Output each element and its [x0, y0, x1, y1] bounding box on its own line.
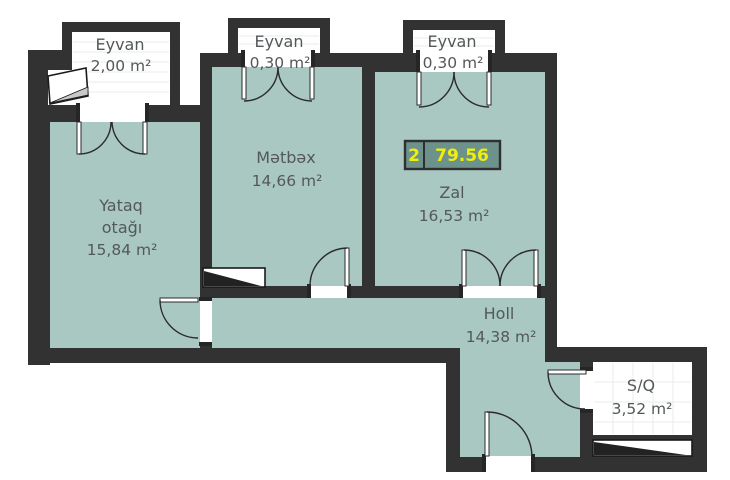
wall-zal-right: [545, 53, 557, 362]
room-area-eyvan3: 0,30 m²: [423, 54, 484, 72]
room-name-yataq-line1: Yataq: [98, 196, 143, 215]
sq-window-symbol: [593, 440, 692, 456]
doorway-eyvan1-yataq: [79, 105, 146, 122]
wall-balcony3-right: [495, 20, 505, 53]
wall-bottom-left: [28, 348, 460, 363]
room-area-holl: 14,38 m²: [466, 328, 537, 346]
door-leaf: [487, 72, 491, 105]
room-name-sq: S/Q: [627, 376, 655, 395]
door-leaf: [462, 250, 466, 286]
wall-sq-top: [545, 347, 707, 362]
door-leaf: [143, 122, 147, 154]
total-area-value: 79.56: [435, 146, 489, 166]
room-name-eyvan1: Eyvan: [96, 35, 145, 54]
doorway-holl-sq: [580, 371, 593, 410]
room-area-zal: 16,53 m²: [419, 207, 490, 225]
wall-balcony2-right: [320, 18, 330, 53]
door-leaf: [534, 250, 538, 286]
room-area-metbex: 14,66 m²: [252, 172, 323, 190]
door-leaf: [242, 67, 246, 99]
room-area-eyvan1: 2,00 m²: [91, 57, 152, 75]
floor-plan-page: 2 79.56 Eyvan 2,00 m² Eyvan 0,30 m² Eyva…: [0, 0, 730, 480]
room-area-sq: 3,52 m²: [612, 400, 673, 418]
wall-balcony1-top: [62, 22, 180, 32]
wall-outer-left: [28, 50, 50, 365]
wall-kitchen-zal: [362, 53, 375, 298]
wall-balcony2-top: [228, 18, 330, 28]
door-leaf: [77, 122, 81, 154]
doorway-entrance: [485, 456, 532, 472]
room-area-eyvan2: 0,30 m²: [250, 54, 311, 72]
door-leaf: [417, 72, 421, 105]
room-name-yataq-line2: otağı: [102, 218, 142, 237]
kitchen-counter-symbol: [203, 268, 265, 287]
wall-balcony3-top: [403, 20, 505, 30]
door-leaf: [485, 412, 489, 456]
wall-balcony1-right: [170, 22, 180, 122]
wall-hall-step: [446, 348, 460, 472]
room-name-zal: Zal: [439, 183, 464, 202]
door-leaf: [345, 248, 349, 286]
door-leaf: [548, 370, 586, 374]
room-area-yataq: 15,84 m²: [87, 241, 158, 259]
summary-badge: 2 79.56: [405, 141, 500, 169]
room-sq-floor: [593, 362, 692, 435]
room-count-value: 2: [408, 146, 420, 166]
door-leaf: [310, 67, 314, 99]
doorway-holl-metbex: [310, 286, 348, 298]
doorway-holl-yataq: [200, 300, 212, 343]
door-leaf: [160, 298, 198, 302]
floor-plan-drawing: 2 79.56 Eyvan 2,00 m² Eyvan 0,30 m² Eyva…: [0, 0, 730, 480]
room-name-eyvan3: Eyvan: [428, 32, 477, 51]
room-name-eyvan2: Eyvan: [255, 32, 304, 51]
room-name-holl: Holl: [484, 304, 515, 323]
room-name-metbex: Mətbəx: [256, 148, 315, 167]
doorway-holl-zal: [462, 286, 538, 298]
